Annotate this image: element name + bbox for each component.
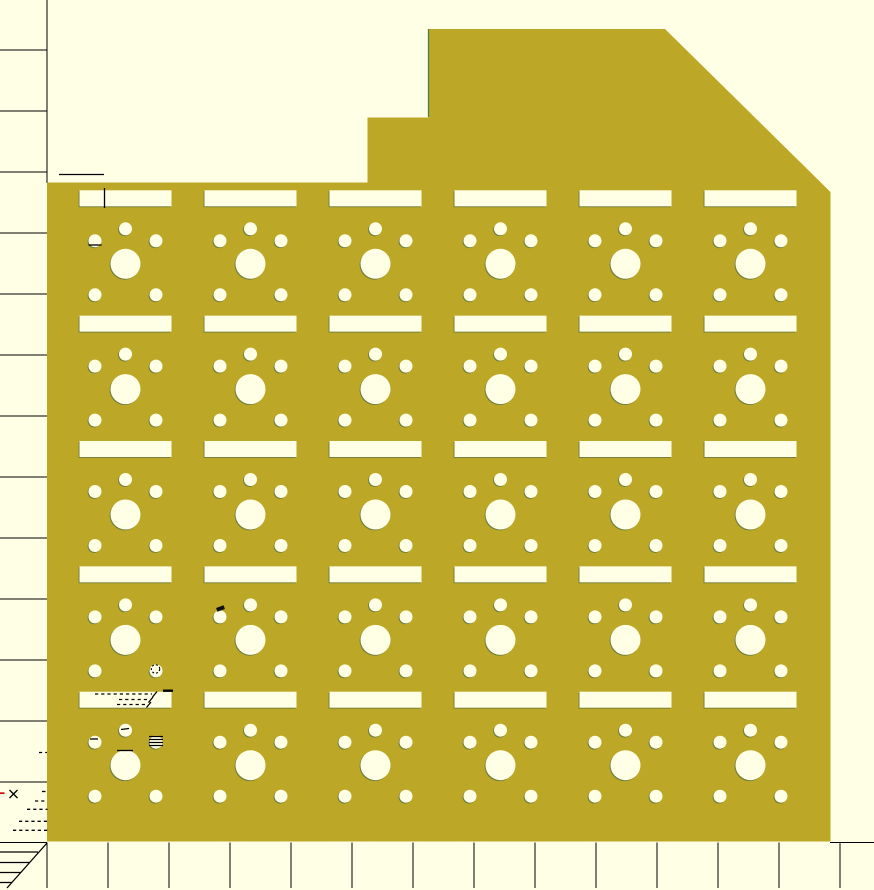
hole	[400, 414, 413, 427]
hole	[150, 610, 163, 623]
stabilizer-slot	[455, 566, 547, 582]
hole	[589, 288, 602, 301]
hole	[650, 288, 663, 301]
stabilizer-slot	[705, 316, 797, 332]
hole	[464, 414, 477, 427]
hole	[275, 234, 288, 247]
hole	[361, 625, 391, 655]
hole	[744, 473, 757, 486]
hole	[611, 249, 641, 279]
hole	[736, 374, 766, 404]
hole	[214, 414, 227, 427]
hole	[775, 539, 788, 552]
stabilizer-slot	[580, 190, 672, 206]
hole	[111, 750, 141, 780]
hole	[244, 348, 257, 361]
hole	[275, 414, 288, 427]
hole	[650, 234, 663, 247]
hole	[111, 625, 141, 655]
hole	[119, 473, 132, 486]
hole	[369, 598, 382, 611]
hole	[525, 234, 538, 247]
hole	[464, 539, 477, 552]
stabilizer-slot	[330, 190, 422, 206]
hole	[339, 610, 352, 623]
hole	[275, 288, 288, 301]
stabilizer-slot	[580, 441, 672, 457]
hole	[619, 222, 632, 235]
hole	[236, 249, 266, 279]
hole	[589, 485, 602, 498]
stray-corner-slot-r5c1	[163, 690, 173, 692]
stabilizer-slot	[330, 316, 422, 332]
hole	[486, 500, 516, 530]
hole	[525, 736, 538, 749]
hole	[89, 539, 102, 552]
hole	[89, 736, 102, 749]
hole	[611, 750, 641, 780]
hole	[775, 610, 788, 623]
hole	[400, 610, 413, 623]
red-dash-left-margin	[0, 792, 5, 794]
hole	[775, 485, 788, 498]
hole	[775, 360, 788, 373]
hole	[89, 288, 102, 301]
stabilizer-slot	[330, 692, 422, 708]
hole	[111, 500, 141, 530]
hole	[464, 485, 477, 498]
hole	[214, 736, 227, 749]
hole	[89, 790, 102, 803]
hole	[589, 610, 602, 623]
hole	[150, 485, 163, 498]
hole	[775, 414, 788, 427]
stabilizer-slot	[705, 441, 797, 457]
hole	[339, 539, 352, 552]
hole	[486, 374, 516, 404]
hole	[89, 414, 102, 427]
hole	[525, 360, 538, 373]
hole	[214, 288, 227, 301]
hole	[244, 222, 257, 235]
stabilizer-slot	[705, 692, 797, 708]
hole	[589, 790, 602, 803]
hole	[486, 625, 516, 655]
hole	[214, 790, 227, 803]
hole	[339, 414, 352, 427]
stabilizer-slot	[80, 566, 172, 582]
hole	[236, 500, 266, 530]
hole	[236, 750, 266, 780]
stabilizer-slot	[205, 692, 297, 708]
hole	[339, 360, 352, 373]
hole	[150, 414, 163, 427]
hole	[214, 234, 227, 247]
hole	[714, 414, 727, 427]
hole	[361, 374, 391, 404]
hole	[464, 234, 477, 247]
hole	[275, 790, 288, 803]
hole	[214, 539, 227, 552]
hole	[400, 288, 413, 301]
hole	[275, 360, 288, 373]
hole	[244, 473, 257, 486]
hole	[275, 610, 288, 623]
hole	[619, 724, 632, 737]
hole	[619, 598, 632, 611]
stabilizer-slot	[455, 316, 547, 332]
hole	[744, 724, 757, 737]
hole	[464, 360, 477, 373]
hole	[525, 790, 538, 803]
hole	[275, 485, 288, 498]
hole	[400, 539, 413, 552]
hole	[775, 790, 788, 803]
hole	[236, 374, 266, 404]
hole	[111, 374, 141, 404]
hole	[214, 664, 227, 677]
hole	[400, 790, 413, 803]
hole	[464, 288, 477, 301]
openscad-viewport[interactable]	[0, 0, 874, 890]
hole	[589, 664, 602, 677]
hole	[744, 348, 757, 361]
stabilizer-slot	[80, 441, 172, 457]
hole	[736, 500, 766, 530]
hole	[744, 598, 757, 611]
stabilizer-slot	[205, 441, 297, 457]
hole	[775, 234, 788, 247]
hole	[119, 222, 132, 235]
stabilizer-slot	[455, 441, 547, 457]
hole	[611, 625, 641, 655]
hole	[244, 598, 257, 611]
hole	[650, 485, 663, 498]
hole	[150, 664, 163, 677]
hole	[464, 736, 477, 749]
hole	[525, 414, 538, 427]
hole	[214, 360, 227, 373]
hole	[275, 736, 288, 749]
hole	[494, 724, 507, 737]
hole	[736, 750, 766, 780]
stabilizer-slot	[455, 190, 547, 206]
hole	[619, 473, 632, 486]
hole	[119, 598, 132, 611]
hole	[494, 598, 507, 611]
hole	[525, 485, 538, 498]
hole	[589, 736, 602, 749]
hole	[486, 750, 516, 780]
hole	[400, 664, 413, 677]
hole	[494, 222, 507, 235]
hole	[775, 736, 788, 749]
hole	[494, 473, 507, 486]
render-canvas	[0, 0, 874, 890]
stabilizer-slot	[580, 692, 672, 708]
stabilizer-slot	[705, 190, 797, 206]
hole	[369, 724, 382, 737]
hole	[464, 664, 477, 677]
hole	[361, 249, 391, 279]
hole	[714, 485, 727, 498]
hole	[150, 790, 163, 803]
hole	[464, 610, 477, 623]
hole	[275, 664, 288, 677]
stabilizer-slot	[330, 566, 422, 582]
hole	[339, 288, 352, 301]
hole	[714, 360, 727, 373]
hole	[736, 625, 766, 655]
hole	[650, 414, 663, 427]
hole	[714, 539, 727, 552]
hole	[150, 539, 163, 552]
hole	[714, 790, 727, 803]
hole	[714, 610, 727, 623]
stabilizer-slot	[330, 441, 422, 457]
hole	[589, 234, 602, 247]
hole	[150, 360, 163, 373]
hole	[714, 234, 727, 247]
hole	[486, 249, 516, 279]
hole	[400, 360, 413, 373]
stabilizer-slot	[580, 566, 672, 582]
hole	[339, 234, 352, 247]
hole	[775, 664, 788, 677]
hole	[111, 249, 141, 279]
hole	[775, 288, 788, 301]
hole	[369, 473, 382, 486]
hole	[714, 664, 727, 677]
hole	[361, 500, 391, 530]
hole	[275, 539, 288, 552]
hole	[89, 485, 102, 498]
hole	[339, 790, 352, 803]
hole	[650, 360, 663, 373]
hole	[400, 234, 413, 247]
hole	[89, 610, 102, 623]
hole	[119, 348, 132, 361]
hole	[464, 790, 477, 803]
hole	[611, 500, 641, 530]
hole	[589, 539, 602, 552]
hole	[650, 736, 663, 749]
hole	[650, 539, 663, 552]
stabilizer-slot	[705, 566, 797, 582]
hole	[400, 485, 413, 498]
hole	[339, 736, 352, 749]
hole	[525, 288, 538, 301]
hole	[400, 736, 413, 749]
stabilizer-slot	[455, 692, 547, 708]
hole	[650, 664, 663, 677]
hole	[214, 610, 227, 623]
stabilizer-slot	[205, 566, 297, 582]
stabilizer-slot	[80, 316, 172, 332]
hole	[150, 234, 163, 247]
hole	[339, 664, 352, 677]
stabilizer-slot	[205, 190, 297, 206]
hole	[650, 610, 663, 623]
hole	[89, 664, 102, 677]
stabilizer-slot	[205, 316, 297, 332]
hole	[736, 249, 766, 279]
stabilizer-slot	[580, 316, 672, 332]
hole	[744, 222, 757, 235]
hole	[369, 222, 382, 235]
hole	[525, 539, 538, 552]
hole	[89, 360, 102, 373]
hole	[619, 348, 632, 361]
hole	[714, 736, 727, 749]
hole	[611, 374, 641, 404]
hole	[589, 360, 602, 373]
hole	[244, 724, 257, 737]
hole	[369, 348, 382, 361]
hole	[494, 348, 507, 361]
hole	[214, 485, 227, 498]
hole	[339, 485, 352, 498]
hole	[525, 664, 538, 677]
hole	[236, 625, 266, 655]
hole	[589, 414, 602, 427]
hole	[525, 610, 538, 623]
stabilizer-slot	[80, 190, 172, 206]
hole	[361, 750, 391, 780]
hole	[714, 288, 727, 301]
hole	[119, 724, 132, 737]
hole	[150, 288, 163, 301]
hole	[650, 790, 663, 803]
